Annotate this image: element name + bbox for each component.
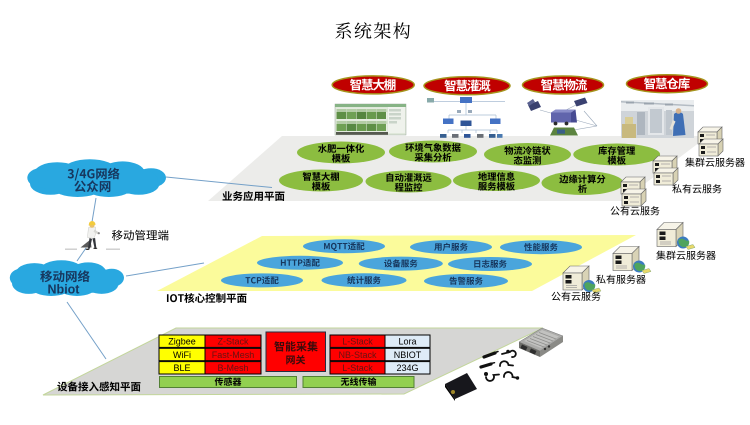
- svg-text:NB-Stack: NB-Stack: [338, 350, 377, 360]
- svg-text:L-Stack: L-Stack: [342, 337, 373, 347]
- svg-text:Z-Stack: Z-Stack: [217, 337, 249, 347]
- svg-text:B-Mesh: B-Mesh: [217, 363, 248, 373]
- svg-text:Lora: Lora: [398, 337, 416, 347]
- svg-text:WiFi: WiFi: [173, 350, 191, 360]
- svg-text:Fast-Mesh: Fast-Mesh: [212, 350, 255, 360]
- svg-text:NBIOT: NBIOT: [394, 350, 422, 360]
- svg-text:Nbiot: Nbiot: [48, 283, 81, 297]
- svg-text:L-Stack: L-Stack: [342, 363, 373, 373]
- svg-text:234G: 234G: [396, 363, 418, 373]
- svg-text:Zigbee: Zigbee: [168, 337, 196, 347]
- svg-text:BLE: BLE: [173, 363, 190, 373]
